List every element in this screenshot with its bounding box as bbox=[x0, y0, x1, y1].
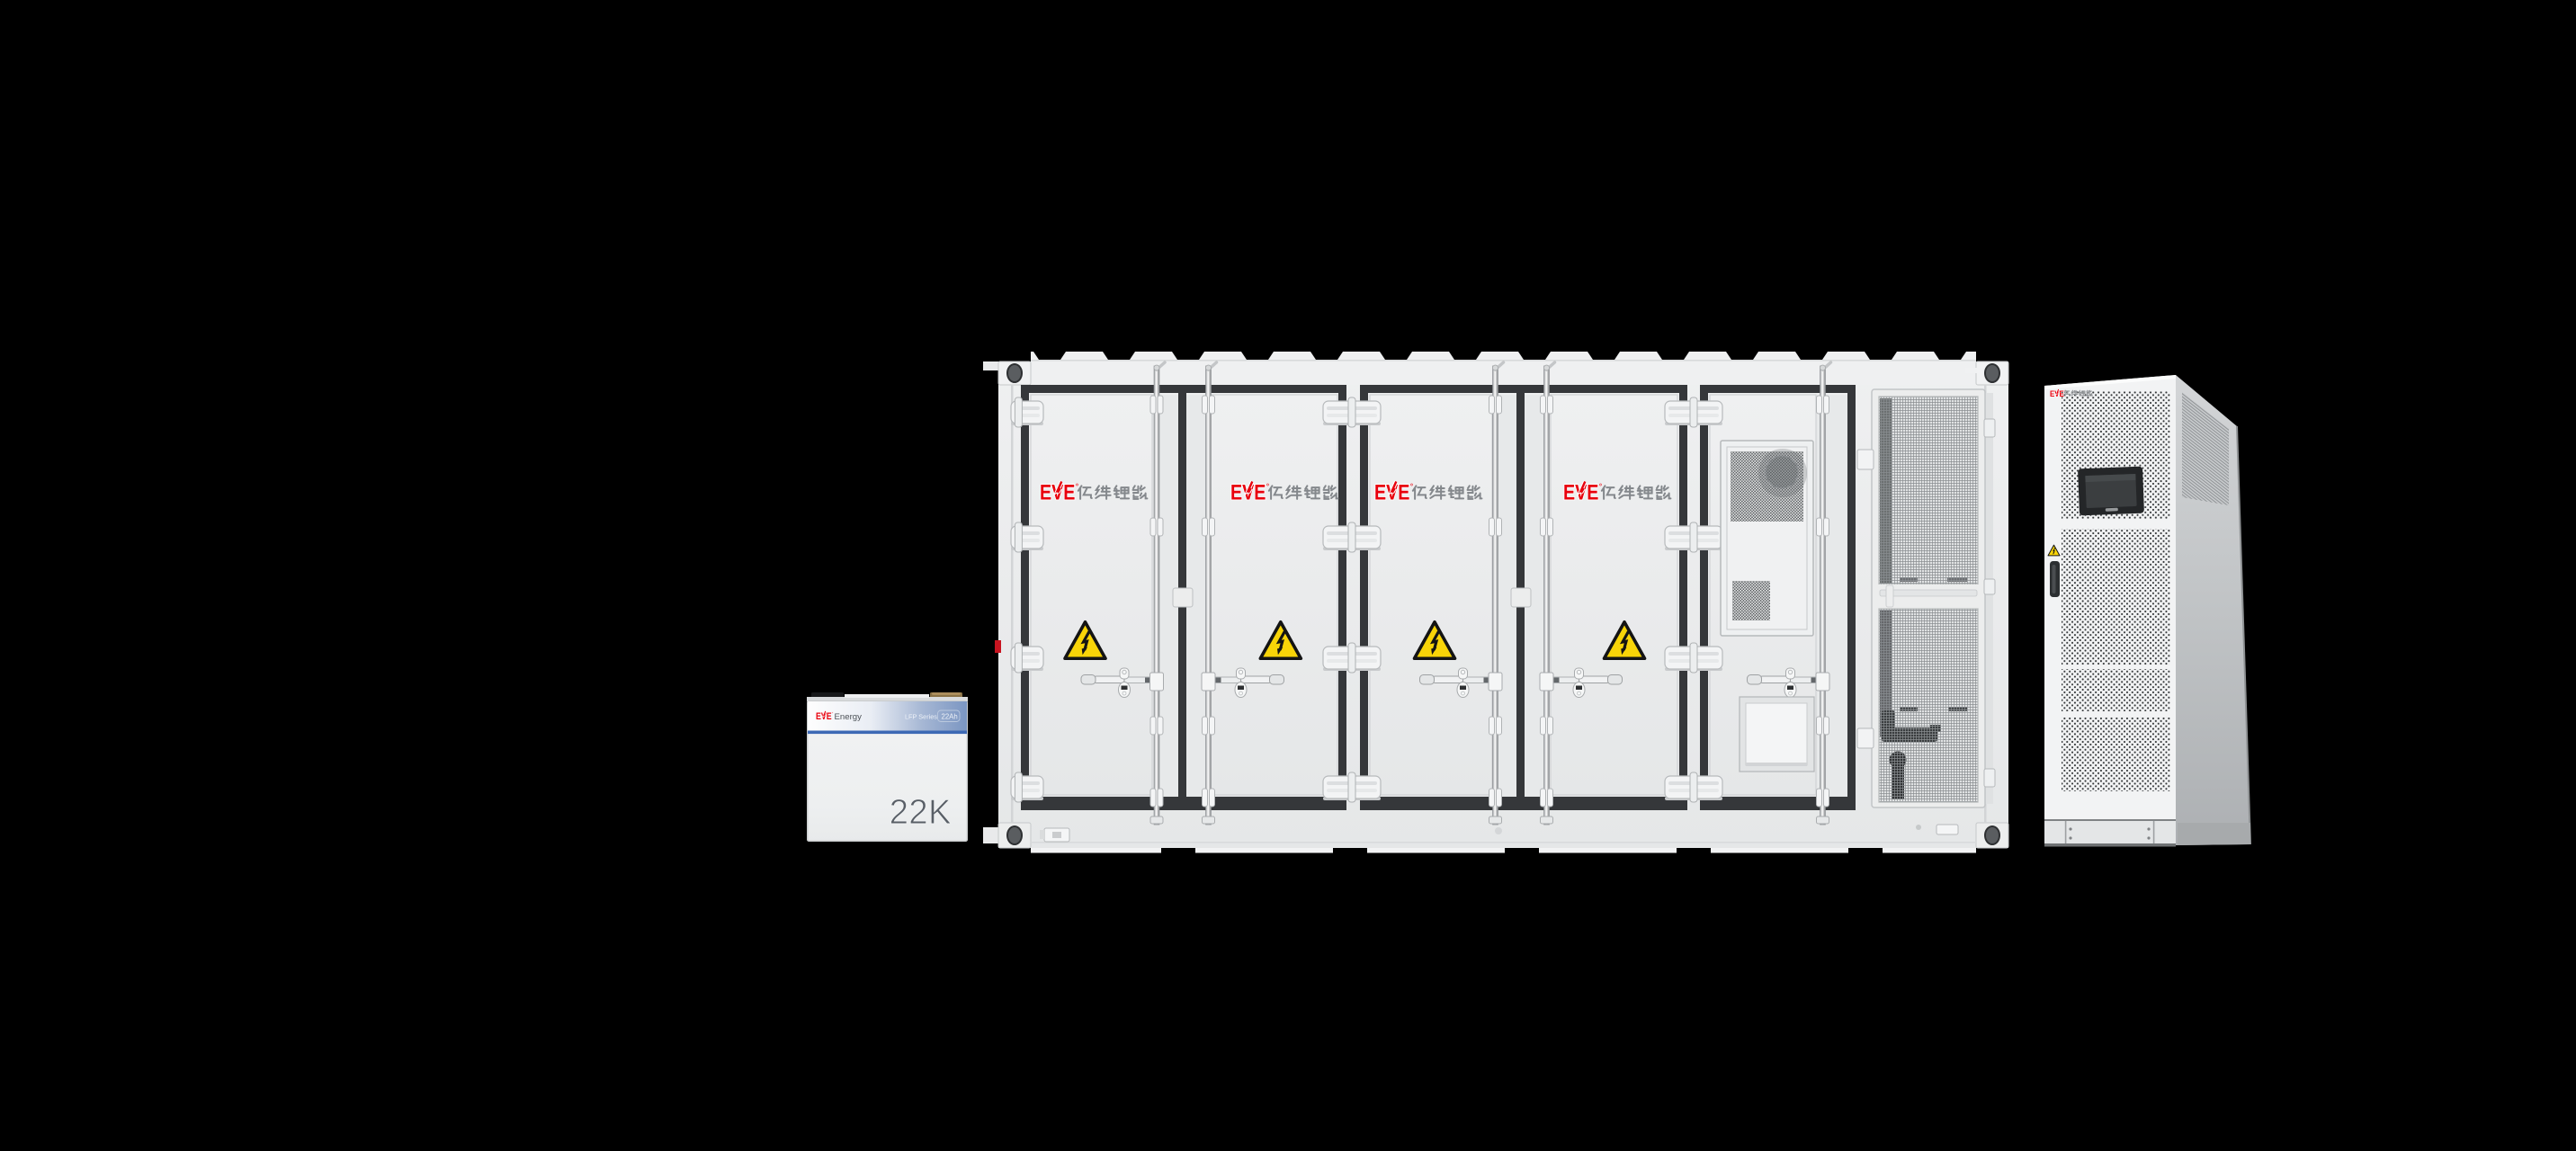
svg-text:22Ah: 22Ah bbox=[942, 713, 958, 721]
svg-text:22K: 22K bbox=[890, 793, 952, 832]
svg-text:Energy: Energy bbox=[835, 712, 863, 722]
svg-text:LFP Series: LFP Series bbox=[905, 713, 937, 721]
svg-text:EVE: EVE bbox=[816, 711, 832, 722]
